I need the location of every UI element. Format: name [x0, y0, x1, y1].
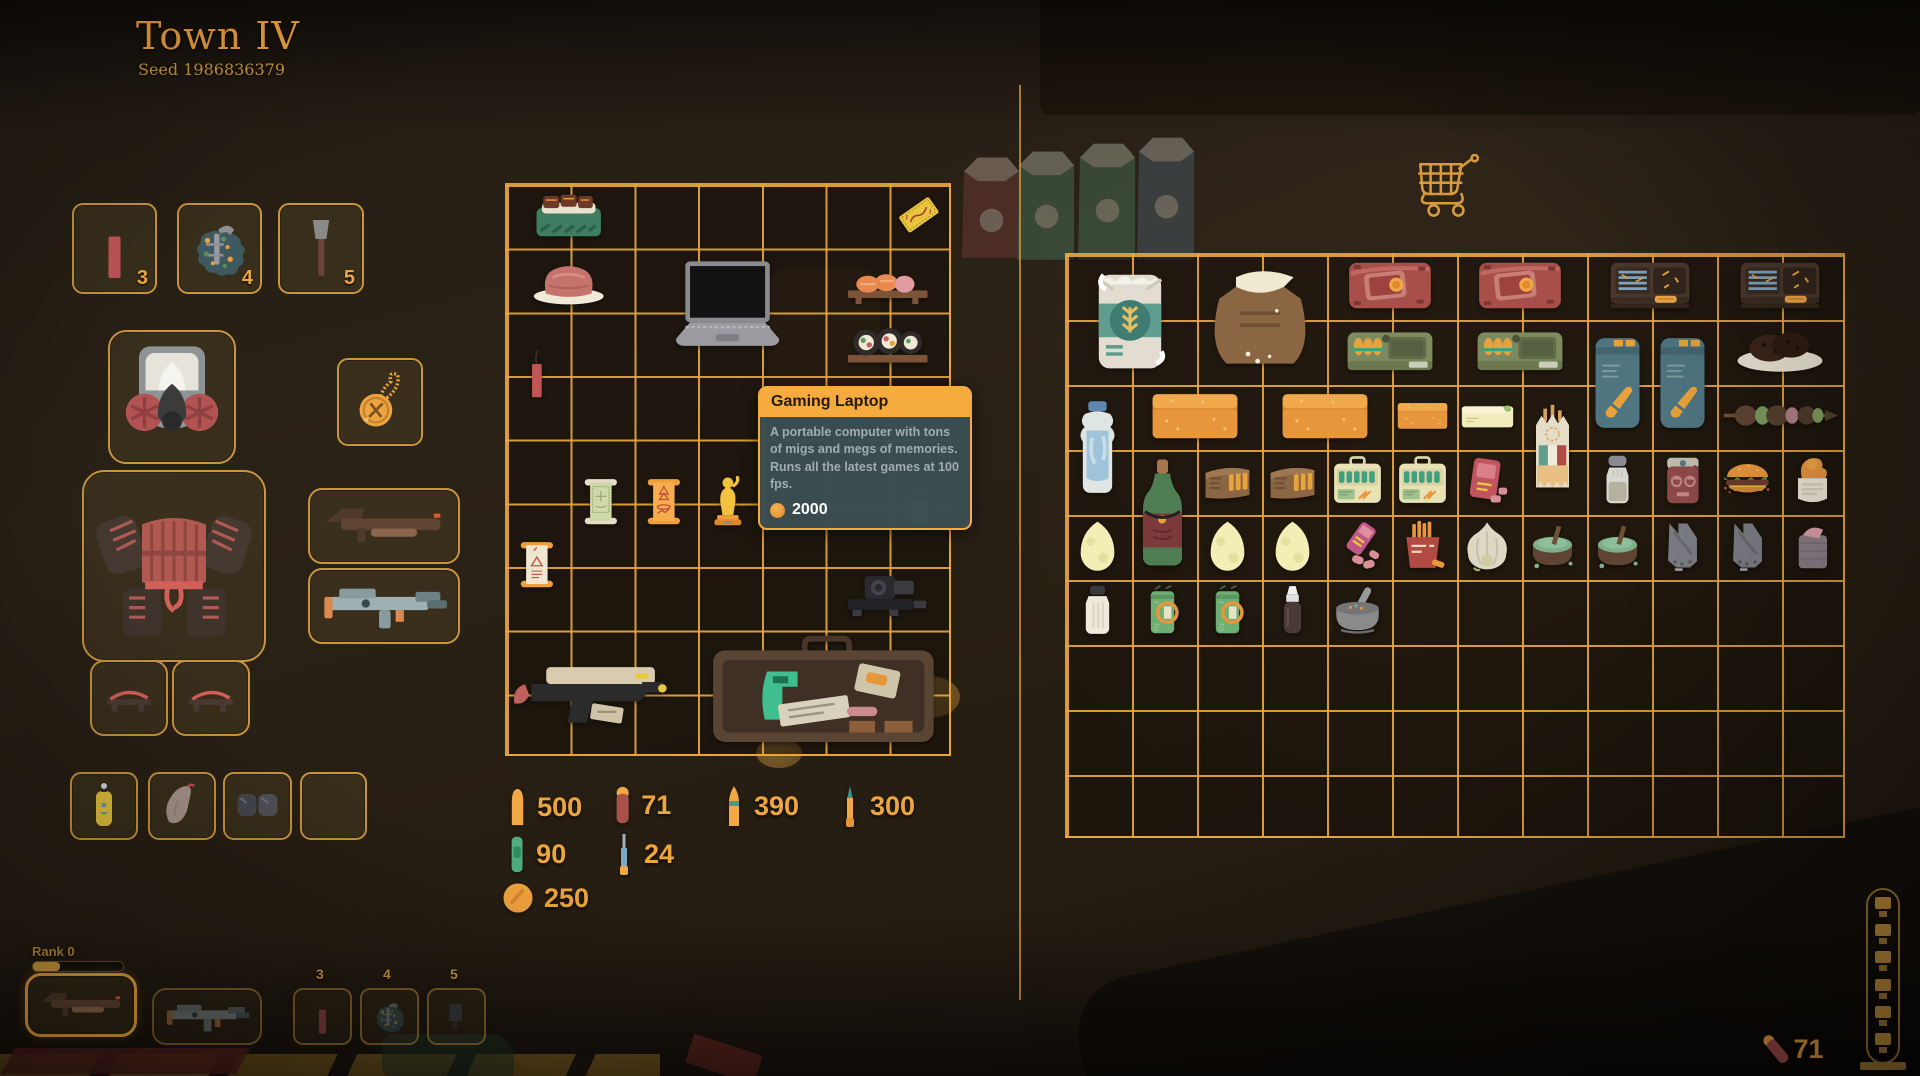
salt-shaker-glass[interactable]: [1585, 448, 1650, 513]
green-scroll[interactable]: [569, 438, 633, 565]
slot-number: 4: [242, 267, 253, 290]
goggles-icon: [232, 781, 283, 831]
pocket-watch-icon: [346, 367, 414, 437]
ammo-count: 500: [537, 792, 582, 823]
shop-inventory-grid[interactable]: [1065, 253, 1845, 838]
scifi-rifle-icon: [317, 577, 451, 635]
equip-slot-foot-left[interactable]: [90, 660, 168, 736]
gas-mask-icon: [117, 339, 227, 455]
ammo-count: 300: [870, 791, 915, 822]
ration-pack[interactable]: [1715, 253, 1845, 318]
seed-label: Seed 1986836379: [138, 60, 285, 79]
tooltip-title: Gaming Laptop: [758, 386, 972, 417]
quick-slot-4[interactable]: 4: [177, 203, 262, 294]
cheese-crate[interactable]: [1130, 383, 1260, 448]
accessory-slot-4-empty[interactable]: [300, 772, 367, 840]
egg[interactable]: [1065, 513, 1130, 578]
sandal-icon: [181, 669, 241, 727]
equipped-ammo-status: 71: [1768, 1032, 1824, 1066]
maki-roll-board[interactable]: [824, 310, 951, 374]
background-milk-cartons: [962, 126, 1198, 272]
jam-jar[interactable]: [1650, 448, 1715, 513]
kebab-skewer[interactable]: [1715, 383, 1845, 448]
coin-count: 250: [544, 883, 589, 914]
soda-can[interactable]: [1195, 578, 1260, 643]
tooltip-description: A portable computer with tons of migs an…: [770, 424, 960, 493]
cookie-plate[interactable]: [1715, 318, 1845, 383]
ammo-count: 390: [754, 791, 799, 822]
ammo-count: 90: [536, 839, 566, 870]
rifle-ammo-counter: 390: [724, 784, 799, 828]
hotbar-slot-1[interactable]: [25, 973, 137, 1037]
quick-slot-3[interactable]: 3: [72, 203, 157, 294]
panel-divider: [1019, 85, 1021, 1000]
needle-round-icon: [614, 832, 634, 876]
battery-kit[interactable]: [1325, 448, 1390, 513]
grain-sack[interactable]: [1195, 253, 1325, 383]
ammo-count: 71: [641, 790, 671, 821]
pistol-ammo-counter: 500: [508, 786, 582, 828]
equip-slot-head[interactable]: [108, 330, 236, 464]
hotbar-key-3: 3: [316, 966, 324, 982]
equip-slot-body[interactable]: [82, 470, 266, 662]
loaded-shell-indicator: [1875, 924, 1891, 944]
shotgun-icon: [317, 497, 451, 555]
cigar-wallet[interactable]: [1195, 448, 1260, 513]
loaded-shell-indicator: [1875, 897, 1891, 917]
baguette-bag[interactable]: [1520, 383, 1585, 513]
coin-counter: 250: [502, 882, 589, 914]
shotgun-icon: [35, 983, 127, 1027]
fries-box[interactable]: [1390, 513, 1455, 578]
quick-slot-5[interactable]: 5: [278, 203, 364, 294]
camera-scope[interactable]: [824, 565, 951, 629]
magnum-ammo-counter: 90: [508, 834, 566, 874]
sardine-can[interactable]: [1325, 318, 1455, 383]
armor-scrap[interactable]: [1715, 513, 1780, 578]
ham-on-plate[interactable]: [505, 247, 632, 311]
wine-bottle[interactable]: [1130, 448, 1195, 578]
shopping-cart-icon: [1408, 154, 1486, 220]
orange-scroll[interactable]: [632, 438, 696, 565]
candy-pack[interactable]: [1455, 448, 1520, 513]
tool-case[interactable]: [696, 629, 951, 756]
pill-pack[interactable]: [1325, 513, 1390, 578]
egg[interactable]: [1195, 513, 1260, 578]
mortar-pestle[interactable]: [1325, 578, 1390, 643]
smg-weapon[interactable]: [505, 629, 696, 756]
hotbar-slot-3[interactable]: [293, 988, 352, 1045]
salmon-sushi-board[interactable]: [824, 247, 951, 311]
herb-mortar[interactable]: [1520, 513, 1585, 578]
ration-pack[interactable]: [1585, 253, 1715, 318]
egg[interactable]: [1260, 513, 1325, 578]
sniper-round-icon: [840, 784, 860, 828]
equipped-ammo-count: 71: [1793, 1034, 1823, 1065]
canned-meat[interactable]: [1455, 253, 1585, 318]
accessory-slot-3[interactable]: [223, 772, 292, 840]
water-bottle[interactable]: [1065, 383, 1130, 513]
cheese-crate[interactable]: [1390, 383, 1455, 448]
unknown-item-icon: [436, 997, 477, 1036]
herb-mortar[interactable]: [1585, 513, 1650, 578]
loaded-shell-indicator: [1875, 979, 1891, 999]
coin-icon: [770, 503, 785, 518]
hamburger[interactable]: [1715, 448, 1780, 513]
equip-slot-necklace[interactable]: [337, 358, 423, 446]
cigar-wallet[interactable]: [1260, 448, 1325, 513]
equip-slot-weapon-2[interactable]: [308, 568, 460, 644]
xp-progress-fill: [33, 962, 60, 971]
ammo-count: 24: [644, 839, 674, 870]
slot-number: 3: [137, 267, 148, 290]
hotbar-key-5: 5: [450, 966, 458, 982]
cheese-crate[interactable]: [1260, 383, 1390, 448]
magnum-shell-icon: [508, 834, 526, 874]
salt-shaker[interactable]: [1065, 578, 1130, 643]
page-title: Town IV: [136, 14, 300, 58]
loaded-shell-indicator: [1875, 1006, 1891, 1026]
sandal-icon: [99, 669, 159, 727]
shell-magazine-base: [1860, 1062, 1906, 1070]
armor-scrap[interactable]: [1650, 513, 1715, 578]
samurai-armor-icon: [94, 482, 254, 650]
accessory-slot-1[interactable]: [70, 772, 138, 840]
red-scroll[interactable]: [505, 501, 569, 628]
hotbar-key-4: 4: [383, 966, 391, 982]
coin-icon: [502, 882, 534, 914]
butter-box[interactable]: [1455, 383, 1520, 448]
equip-slot-foot-right[interactable]: [172, 660, 250, 736]
soda-can[interactable]: [1130, 578, 1195, 643]
xp-progress-bar: [32, 961, 124, 972]
tooltip-price: 2000: [792, 501, 828, 519]
shotgun-ammo-counter: 71: [614, 786, 671, 824]
canned-meat[interactable]: [1325, 253, 1455, 318]
rank-label: Rank 0: [32, 944, 75, 959]
canned-ham[interactable]: [1780, 513, 1845, 578]
game-screen: Town IV Seed 1986836379 3 4 5: [0, 0, 1920, 1076]
sardine-can[interactable]: [1455, 318, 1585, 383]
golden-trophy[interactable]: [696, 438, 760, 565]
hotbar-slot-5[interactable]: [427, 988, 486, 1045]
oxygen-tank-icon: [79, 781, 129, 831]
garlic-bulb[interactable]: [1455, 513, 1520, 578]
item-tooltip: Gaming Laptop A portable computer with t…: [758, 386, 972, 530]
flour-bag[interactable]: [1065, 253, 1195, 383]
hotbar-slot-2[interactable]: [152, 988, 262, 1045]
hotbar-slot-4[interactable]: [360, 988, 419, 1045]
gaming-laptop[interactable]: [632, 247, 823, 374]
golden-ticket[interactable]: [887, 183, 951, 247]
tooltip-price-row: 2000: [770, 501, 960, 519]
loaded-shell-indicator: [1875, 951, 1891, 971]
dart-ammo-counter: 24: [614, 832, 674, 876]
shell-magazine-indicator: [1866, 888, 1900, 1064]
grilled-eel-tray[interactable]: [505, 183, 632, 247]
rifle-round-icon: [724, 784, 744, 828]
knife-pouch[interactable]: [1650, 318, 1715, 448]
scifi-rifle-icon: [161, 997, 253, 1036]
battery-kit[interactable]: [1390, 448, 1455, 513]
knife-pouch[interactable]: [1585, 318, 1650, 448]
loaded-shell-indicator: [1875, 1033, 1891, 1053]
dynamite-icon: [302, 997, 343, 1036]
dynamite-stick[interactable]: [505, 310, 569, 437]
equip-slot-weapon-1[interactable]: [308, 488, 460, 564]
pistol-round-icon: [508, 786, 527, 828]
dropper-bottle[interactable]: [1260, 578, 1325, 643]
lung-icon: [157, 781, 207, 831]
slot-number: 5: [344, 267, 355, 290]
grenade-icon: [369, 997, 410, 1036]
shotgun-shell-icon: [614, 786, 631, 824]
accessory-slot-2[interactable]: [148, 772, 216, 840]
background-shade: [0, 930, 1920, 1076]
pastry-wrap[interactable]: [1780, 448, 1845, 513]
sniper-ammo-counter: 300: [840, 784, 915, 828]
